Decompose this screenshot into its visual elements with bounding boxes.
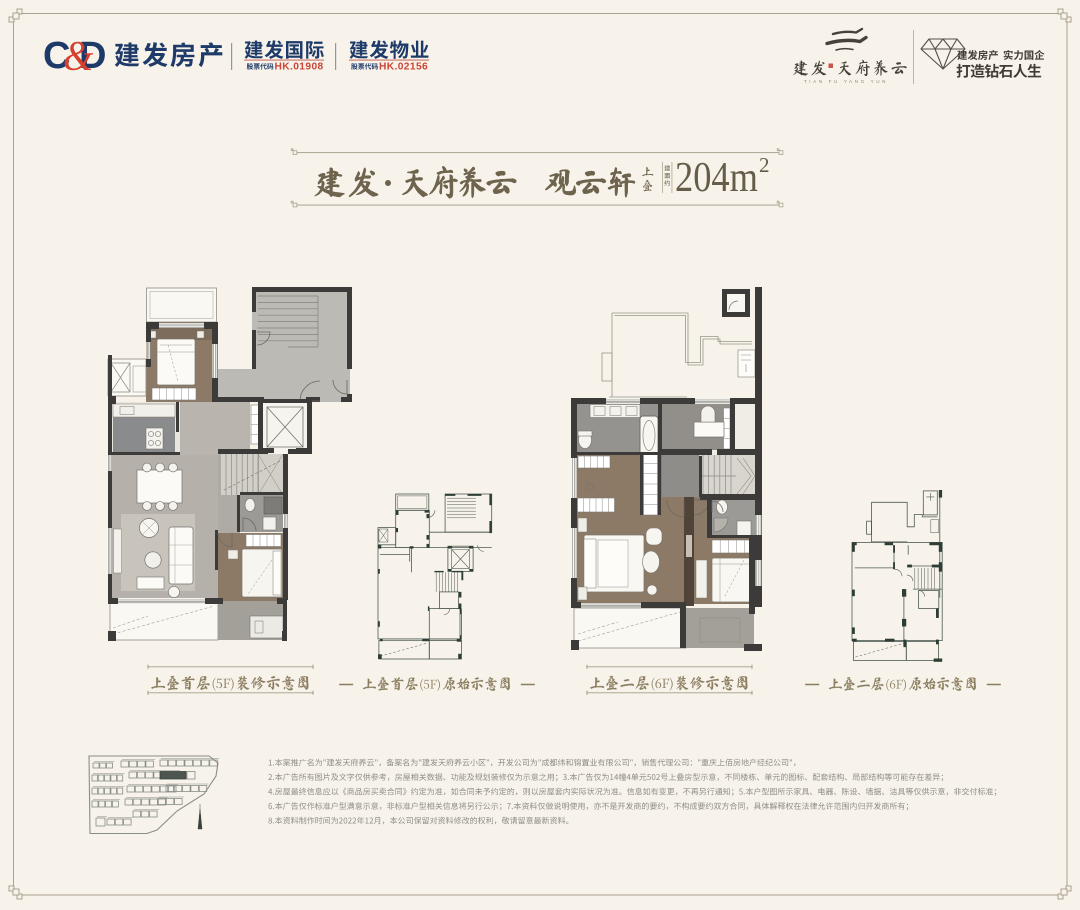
svg-text:&: & [63,33,94,80]
svg-text:204m: 204m [675,155,758,201]
svg-text:HK.02156: HK.02156 [379,62,428,73]
svg-text:HK.01908: HK.01908 [275,62,324,73]
svg-text:2: 2 [759,153,770,177]
svg-text:TIAN FU YANG YUN: TIAN FU YANG YUN [804,79,888,84]
